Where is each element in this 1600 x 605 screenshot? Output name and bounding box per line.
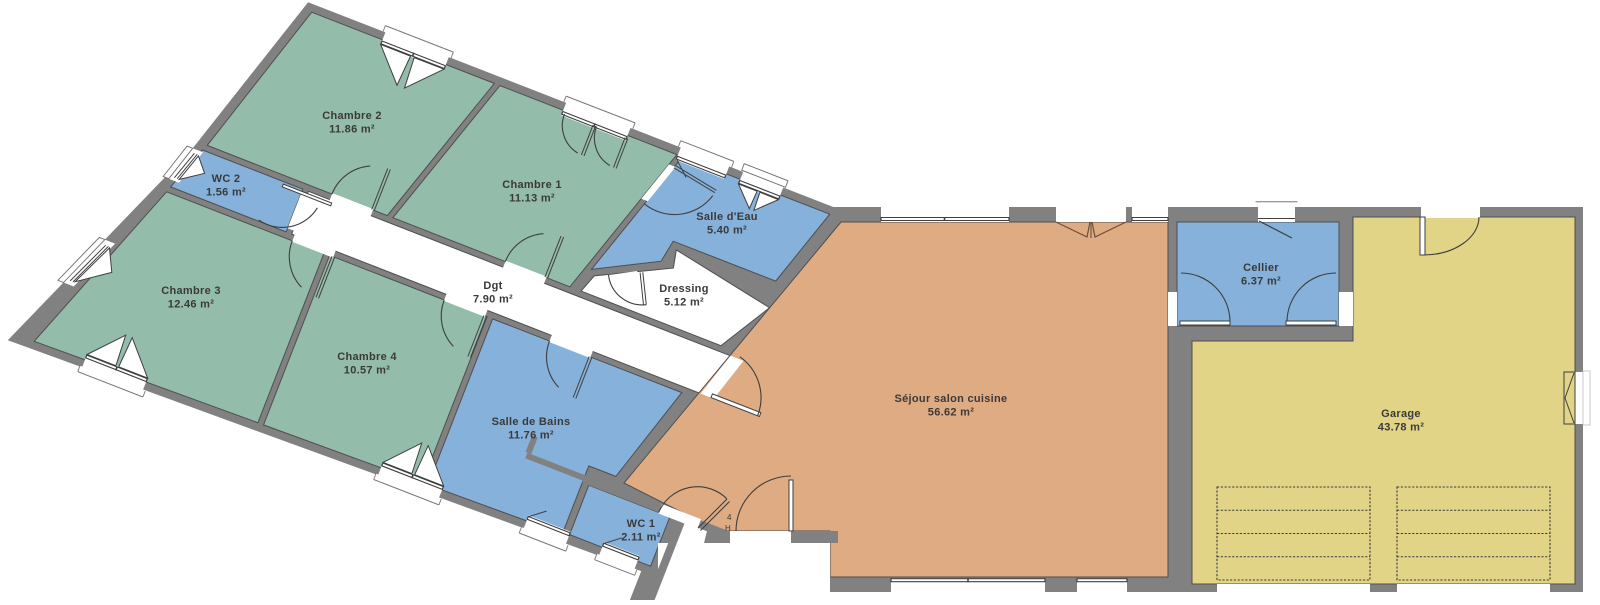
svg-text:43.78 m²: 43.78 m² bbox=[1378, 422, 1424, 434]
svg-text:Chambre 1: Chambre 1 bbox=[502, 179, 562, 191]
svg-text:Dressing: Dressing bbox=[659, 283, 708, 295]
svg-text:11.13 m²: 11.13 m² bbox=[509, 193, 555, 205]
svg-text:10.57 m²: 10.57 m² bbox=[344, 365, 390, 377]
svg-text:7.90 m²: 7.90 m² bbox=[473, 294, 513, 306]
svg-text:Chambre 2: Chambre 2 bbox=[322, 110, 382, 122]
svg-text:Chambre 4: Chambre 4 bbox=[337, 351, 397, 363]
svg-text:12.46 m²: 12.46 m² bbox=[168, 299, 214, 311]
svg-text:11.76 m²: 11.76 m² bbox=[508, 430, 554, 442]
svg-text:WC 1: WC 1 bbox=[627, 518, 656, 530]
svg-text:2.11 m²: 2.11 m² bbox=[621, 532, 660, 544]
svg-text:WC 2: WC 2 bbox=[212, 173, 241, 185]
svg-text:4: 4 bbox=[727, 513, 732, 522]
svg-text:5.40 m²: 5.40 m² bbox=[707, 225, 747, 237]
svg-text:11.86 m²: 11.86 m² bbox=[329, 124, 375, 136]
svg-text:Salle de Bains: Salle de Bains bbox=[492, 416, 571, 428]
svg-text:H: H bbox=[725, 524, 731, 533]
svg-text:5.12 m²: 5.12 m² bbox=[664, 297, 704, 309]
svg-text:Cellier: Cellier bbox=[1243, 262, 1279, 274]
svg-text:Chambre 3: Chambre 3 bbox=[161, 285, 221, 297]
svg-text:1.56 m²: 1.56 m² bbox=[206, 187, 246, 199]
svg-text:Dgt: Dgt bbox=[483, 280, 502, 292]
svg-text:Garage: Garage bbox=[1381, 408, 1421, 420]
svg-text:6.37 m²: 6.37 m² bbox=[1241, 276, 1281, 288]
svg-text:Séjour salon cuisine: Séjour salon cuisine bbox=[895, 393, 1008, 405]
svg-text:Salle d'Eau: Salle d'Eau bbox=[696, 211, 758, 223]
svg-text:56.62 m²: 56.62 m² bbox=[928, 407, 974, 419]
